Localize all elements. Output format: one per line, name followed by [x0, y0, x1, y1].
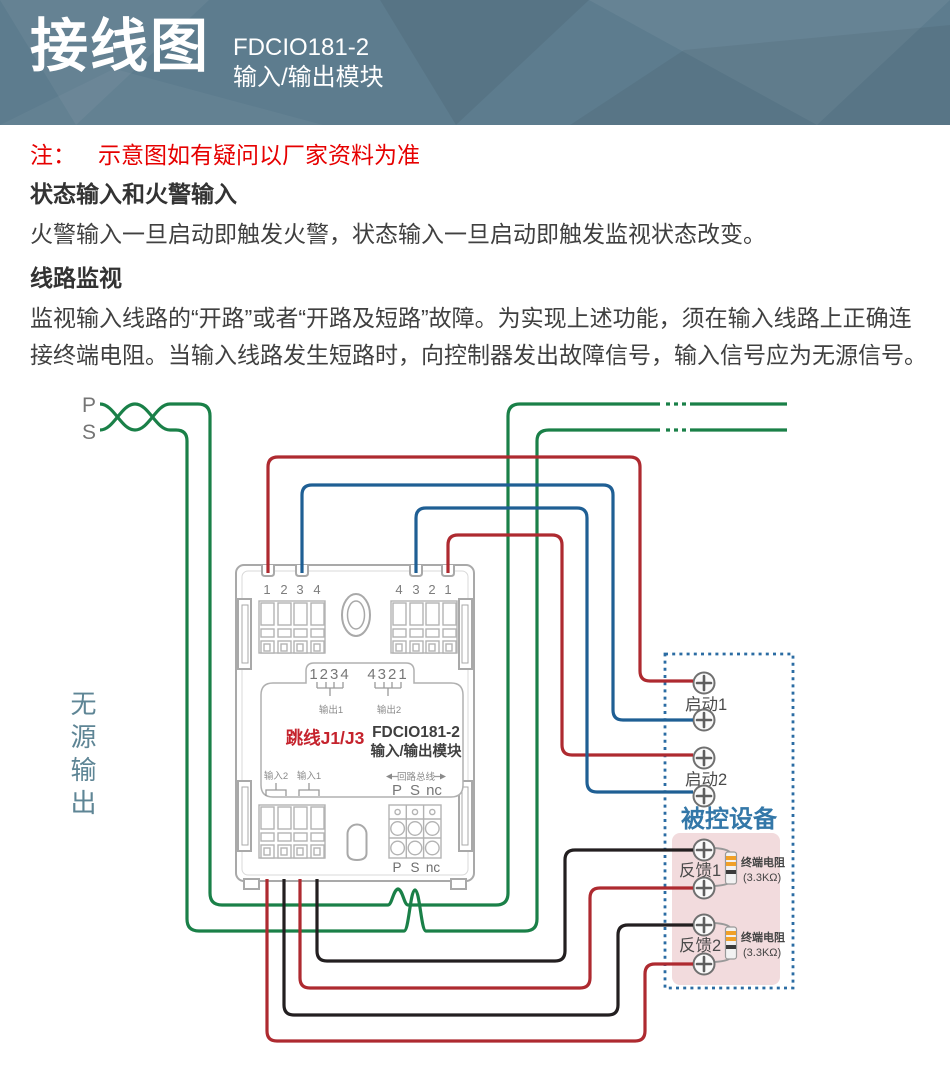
section-body-inputs: 火警输入一旦启动即触发火警，状态输入一旦启动即触发监视状态改变。: [30, 216, 932, 253]
side-rail-slot: [242, 605, 248, 663]
pin-label: 1: [444, 582, 451, 597]
bus-p-label: P: [82, 394, 96, 417]
terminal-block-loop-bus: [389, 805, 441, 858]
jumper-label: 跳线J1/J3: [286, 728, 365, 748]
pin-label: 3: [296, 582, 303, 597]
resistor2-value: (3.3KΩ): [743, 947, 781, 959]
feedback2-label: 反馈2: [679, 936, 721, 955]
output2-label: 输出2: [377, 704, 401, 716]
module-foot: [451, 879, 466, 889]
terminal-block-bottom-left: [259, 805, 325, 858]
section-heading-monitoring: 线路监视: [30, 264, 950, 293]
resistor1-value: (3.3KΩ): [743, 872, 781, 884]
terminal-block-top-left: [259, 601, 325, 653]
model-type: 输入/输出模块: [233, 63, 384, 93]
pin-label: 1: [263, 582, 270, 597]
wiring-diagram: 无源输出: [0, 376, 950, 1076]
block-nc-label: nc: [426, 860, 441, 875]
feedback1-label: 反馈1: [679, 861, 721, 880]
plate-p-label: P: [392, 782, 402, 799]
jumper-pins-2: 4321: [367, 666, 408, 683]
controlled-device-label: 被控设备: [681, 805, 778, 833]
mounting-hole-inner: [348, 601, 365, 629]
plate-nc-label: nc: [426, 782, 442, 799]
note-prefix: 注：: [30, 142, 76, 168]
section-body-monitoring: 监视输入线路的“开路”或者“开路及短路”故障。为实现上述功能，须在输入线路上正确…: [30, 300, 932, 374]
header-subtitle: FDCIO181-2 输入/输出模块: [233, 33, 384, 93]
pin-label: 3: [412, 582, 419, 597]
terminal-block-top-right: [391, 601, 457, 653]
output1-label: 输出1: [319, 704, 343, 716]
module-foot: [244, 879, 259, 889]
pin-label: 4: [395, 582, 402, 597]
plate-s-label: S: [410, 782, 420, 799]
side-rail-slot: [462, 605, 468, 663]
page-header: 接线图 FDCIO181-2 输入/输出模块: [0, 0, 950, 125]
block-s-label: S: [410, 860, 419, 875]
wire-feedback2-plus: [284, 879, 693, 1015]
bus-s-label: S: [82, 421, 96, 444]
input1-label: 输入1: [297, 770, 321, 782]
section-heading-inputs: 状态输入和火警输入: [30, 180, 950, 209]
module-model-type: 输入/输出模块: [370, 742, 462, 760]
jumper-pins-1: 1234: [309, 666, 350, 683]
pin-label: 2: [428, 582, 435, 597]
resistor1-name: 终端电阻: [741, 855, 785, 869]
wiring-diagram-canvas: 1 2 3 4 4 3 2 1 1234 4321 输出1 输出2 跳线J1/J…: [0, 376, 950, 1076]
pin-label: 4: [313, 582, 320, 597]
module-model: FDCIO181-2: [372, 724, 460, 741]
wire-feedback1-minus: [300, 879, 693, 988]
side-rail-slot: [462, 787, 468, 845]
page-title: 接线图: [30, 18, 210, 76]
side-rail-slot: [242, 787, 248, 845]
wire-start2-plus: [448, 535, 693, 755]
block-p-label: P: [392, 860, 401, 875]
model-number: FDCIO181-2: [233, 33, 384, 63]
keyhole-slot: [348, 825, 367, 861]
disclaimer-note: 注：示意图如有疑问以厂家资料为准: [30, 141, 950, 169]
input2-label: 输入2: [264, 770, 288, 782]
pin-label: 2: [280, 582, 287, 597]
note-text: 示意图如有疑问以厂家资料为准: [98, 142, 420, 168]
resistor2-name: 终端电阻: [741, 930, 785, 944]
